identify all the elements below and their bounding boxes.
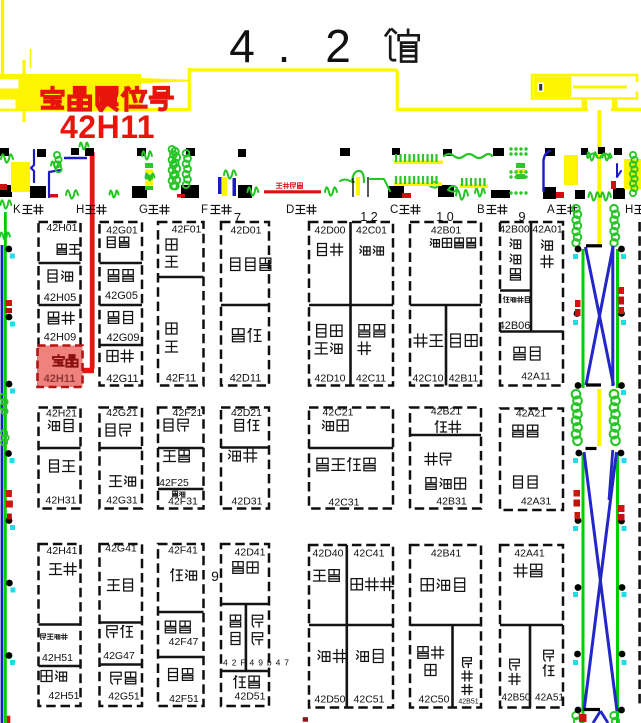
svg-text:42D40: 42D40 bbox=[313, 548, 344, 560]
svg-text:2: 2 bbox=[325, 20, 351, 72]
svg-text:42H51: 42H51 bbox=[49, 690, 80, 702]
svg-text:42F41: 42F41 bbox=[168, 545, 198, 557]
svg-text:42F31: 42F31 bbox=[168, 496, 198, 508]
svg-text:42G41: 42G41 bbox=[105, 543, 137, 555]
svg-text:F: F bbox=[201, 204, 208, 216]
svg-text:H: H bbox=[76, 204, 84, 216]
svg-text:42B21: 42B21 bbox=[431, 406, 462, 418]
svg-text:42B41: 42B41 bbox=[431, 548, 462, 560]
svg-text:42A31: 42A31 bbox=[521, 496, 552, 508]
svg-text:42C50: 42C50 bbox=[419, 694, 450, 706]
svg-text:42G51: 42G51 bbox=[108, 691, 140, 703]
svg-text:42D50: 42D50 bbox=[315, 694, 346, 706]
svg-text:42A51: 42A51 bbox=[535, 693, 564, 704]
svg-text:42A01: 42A01 bbox=[532, 224, 563, 236]
svg-text:42D41: 42D41 bbox=[235, 547, 266, 559]
svg-text:42G11: 42G11 bbox=[106, 373, 138, 385]
svg-text:42A21: 42A21 bbox=[516, 408, 547, 420]
svg-text:42H11: 42H11 bbox=[44, 373, 76, 385]
svg-text:42B51: 42B51 bbox=[458, 699, 478, 706]
svg-text:.: . bbox=[278, 20, 291, 72]
svg-text:42A11: 42A11 bbox=[521, 371, 551, 383]
svg-text:42D31: 42D31 bbox=[232, 496, 263, 508]
svg-text:C: C bbox=[390, 204, 398, 216]
svg-text:42F51: 42F51 bbox=[169, 693, 199, 705]
svg-text:42B50: 42B50 bbox=[502, 693, 531, 704]
svg-text:42B01: 42B01 bbox=[431, 225, 462, 237]
svg-text:42C31: 42C31 bbox=[329, 497, 360, 509]
svg-text:42H51: 42H51 bbox=[42, 652, 73, 664]
svg-text:42H31: 42H31 bbox=[46, 495, 77, 507]
svg-text:42C11: 42C11 bbox=[356, 373, 386, 385]
svg-text:42F21: 42F21 bbox=[173, 407, 203, 419]
svg-text:42C10: 42C10 bbox=[413, 373, 444, 385]
svg-text:42F25: 42F25 bbox=[159, 477, 189, 489]
svg-text:G: G bbox=[139, 204, 148, 216]
svg-text:42C01: 42C01 bbox=[356, 225, 387, 237]
svg-text:42C51: 42C51 bbox=[354, 694, 385, 706]
svg-text:4 2 F 4 9 b 4 7: 4 2 F 4 9 b 4 7 bbox=[223, 658, 290, 668]
svg-text:42H09: 42H09 bbox=[44, 332, 76, 344]
svg-text:42H11: 42H11 bbox=[60, 109, 155, 145]
svg-text:42H21: 42H21 bbox=[46, 408, 77, 420]
svg-text:42C41: 42C41 bbox=[354, 548, 385, 560]
svg-text:42G01: 42G01 bbox=[106, 225, 138, 237]
svg-text:42D00: 42D00 bbox=[315, 225, 346, 237]
svg-text:42D51: 42D51 bbox=[235, 691, 266, 703]
svg-text:42H41: 42H41 bbox=[47, 545, 78, 557]
svg-text:42F01: 42F01 bbox=[172, 224, 202, 236]
svg-text:42B11: 42B11 bbox=[449, 373, 479, 385]
svg-text:42G05: 42G05 bbox=[105, 290, 138, 302]
svg-text:B: B bbox=[477, 204, 485, 216]
svg-text:9: 9 bbox=[211, 568, 219, 584]
svg-text:42D21: 42D21 bbox=[231, 407, 262, 419]
svg-text:42G09: 42G09 bbox=[106, 332, 139, 344]
svg-text:42H01: 42H01 bbox=[47, 222, 78, 234]
svg-text:42G47: 42G47 bbox=[103, 650, 135, 662]
svg-text:D: D bbox=[286, 204, 294, 216]
svg-text:42D11: 42D11 bbox=[230, 373, 262, 385]
svg-text:42F47: 42F47 bbox=[169, 636, 199, 648]
svg-text:A: A bbox=[547, 204, 555, 216]
svg-text:42B06: 42B06 bbox=[499, 320, 531, 332]
svg-text:42C21: 42C21 bbox=[323, 407, 354, 419]
svg-text:4: 4 bbox=[229, 20, 255, 72]
svg-text:42D10: 42D10 bbox=[315, 373, 346, 385]
svg-text:42B31: 42B31 bbox=[436, 496, 467, 508]
svg-text:42G31: 42G31 bbox=[106, 495, 138, 507]
svg-text:42G21: 42G21 bbox=[106, 407, 138, 419]
svg-text:K: K bbox=[13, 204, 21, 216]
svg-text:42D01: 42D01 bbox=[231, 225, 262, 237]
svg-text:42A41: 42A41 bbox=[514, 548, 545, 560]
svg-text:42H05: 42H05 bbox=[44, 292, 76, 304]
svg-text:42F11: 42F11 bbox=[166, 373, 196, 385]
svg-text:H: H bbox=[625, 204, 633, 216]
svg-text:42B00: 42B00 bbox=[499, 224, 530, 236]
